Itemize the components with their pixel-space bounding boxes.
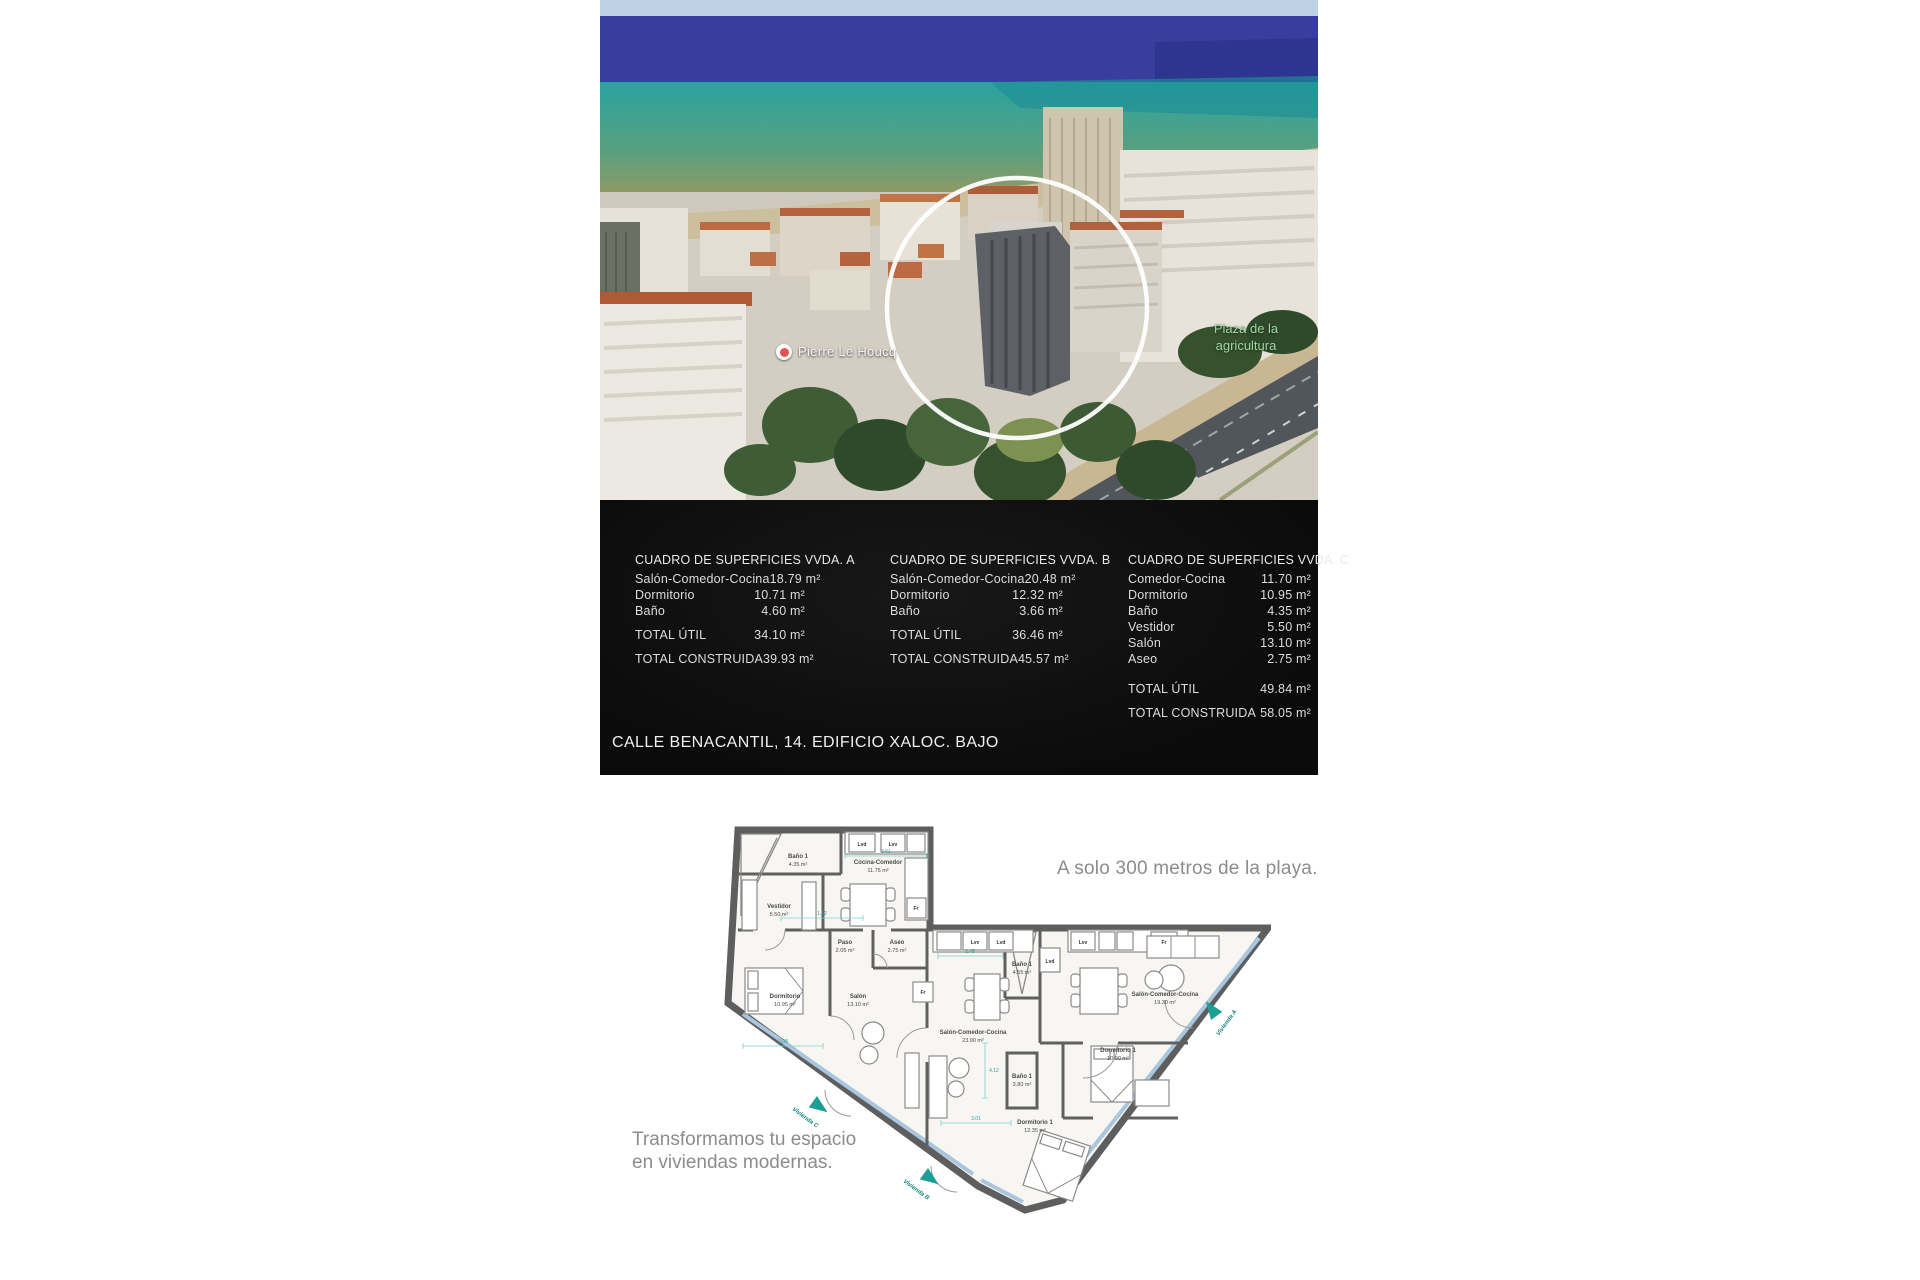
- table-row: Baño4.60 m²: [635, 603, 805, 619]
- appliance-label-fr: Fr: [914, 906, 919, 912]
- appliance-label-lvd: Lvd: [1046, 959, 1055, 965]
- entrance-label: Vivienda C: [791, 1107, 820, 1130]
- park-label-line1: Plaza de la: [1198, 320, 1294, 337]
- appliance-label-lvv: Lvv: [971, 940, 980, 946]
- dimension-label: 2.45: [965, 949, 975, 955]
- surface-table-b: CUADRO DE SUPERFICIES VVDA. B Salón-Come…: [890, 552, 1063, 667]
- appliance-label-lvv: Lvv: [1079, 940, 1088, 946]
- row-label: TOTAL CONSTRUIDA: [1128, 705, 1256, 721]
- row-value: 58.05 m²: [1260, 705, 1311, 721]
- row-value: 39.93 m²: [763, 651, 814, 667]
- table-row: Salón-Comedor-Cocina20.48 m²: [890, 571, 1063, 587]
- row-value: 2.75 m²: [1267, 651, 1311, 667]
- table-row: Salón-Comedor-Cocina18.79 m²: [635, 571, 805, 587]
- row-value: 49.84 m²: [1260, 681, 1311, 697]
- wardrobe: [802, 882, 816, 930]
- entrance-label: Vivienda B: [902, 1179, 931, 1202]
- room-area: 10.95 m²: [774, 1002, 796, 1008]
- floor-plan: 3.61 1.52 2.45 2.08 3.01 4.12 Lvd Lvv Fr…: [723, 818, 1271, 1218]
- row-label: Comedor-Cocina: [1128, 571, 1225, 587]
- room-area: 10.90 m²: [1107, 1056, 1129, 1062]
- room-area: 12.35 m²: [1024, 1128, 1046, 1134]
- row-label: Salón-Comedor-Cocina: [635, 571, 770, 587]
- place-label: Pierre Le Houcq: [798, 344, 896, 359]
- table-row: Comedor-Cocina11.70 m²: [1128, 571, 1311, 587]
- dimension-label: 4.12: [989, 1068, 999, 1074]
- room-area: 4.35 m²: [789, 862, 808, 868]
- table-row: Aseo2.75 m²: [1128, 651, 1311, 667]
- total-util-row: TOTAL ÚTIL49.84 m²: [1128, 681, 1311, 697]
- table-row: Vestidor5.50 m²: [1128, 619, 1311, 635]
- row-value: 5.50 m²: [1267, 619, 1311, 635]
- wardrobe: [742, 880, 757, 930]
- park-label-line2: agricultura: [1198, 337, 1294, 354]
- table-row: Dormitorio12.32 m²: [890, 587, 1063, 603]
- room-label: Dormitorio 1: [1100, 1048, 1136, 1054]
- room-label: Baño 1: [1012, 1074, 1033, 1080]
- row-label: TOTAL CONSTRUIDA: [890, 651, 1018, 667]
- room-label: Dormitorio: [770, 994, 801, 1000]
- room-area: 13.10 m²: [847, 1002, 869, 1008]
- row-label: Salón-Comedor-Cocina: [890, 571, 1025, 587]
- entrance-arrow-b: Vivienda B: [902, 1161, 944, 1202]
- total-built-row: TOTAL CONSTRUIDA45.57 m²: [890, 651, 1063, 667]
- room-label: Vestidor: [767, 904, 791, 910]
- room-label: Salón-Comedor-Cocina: [940, 1030, 1007, 1036]
- map-pin-icon: [776, 344, 792, 360]
- appliance-label-lvv: Lvv: [889, 842, 898, 848]
- row-value: 18.79 m²: [770, 571, 821, 587]
- room-area: 2.75 m²: [888, 948, 907, 954]
- row-value: 36.46 m²: [1012, 627, 1063, 643]
- appliance-label-lvd: Lvd: [858, 842, 867, 848]
- total-built-row: TOTAL CONSTRUIDA39.93 m²: [635, 651, 805, 667]
- total-util-row: TOTAL ÚTIL36.46 m²: [890, 627, 1063, 643]
- row-value: 10.95 m²: [1260, 587, 1311, 603]
- row-value: 4.35 m²: [1267, 603, 1311, 619]
- row-value: 11.70 m²: [1261, 571, 1311, 587]
- row-label: Salón: [1128, 635, 1161, 651]
- flyer-page: Pierre Le Houcq Plaza de la agricultura …: [0, 0, 1920, 1280]
- room-area: 5.50 m²: [770, 912, 789, 918]
- row-label: Vestidor: [1128, 619, 1175, 635]
- room-area: 11.75 m²: [867, 868, 888, 874]
- entrance-arrow-c: Vivienda C: [791, 1089, 833, 1130]
- table-title: CUADRO DE SUPERFICIES VVDA. B: [890, 552, 1063, 568]
- aerial-photo: Pierre Le Houcq Plaza de la agricultura: [600, 0, 1318, 500]
- surface-table-a: CUADRO DE SUPERFICIES VVDA. A Salón-Come…: [635, 552, 805, 667]
- appliance-label-fr: Fr: [1162, 940, 1167, 946]
- table-title: CUADRO DE SUPERFICIES VVDA. C: [1128, 552, 1311, 568]
- appliance-label-lvd: Lvd: [997, 940, 1006, 946]
- table-row: Baño4.35 m²: [1128, 603, 1311, 619]
- table-title: CUADRO DE SUPERFICIES VVDA. A: [635, 552, 805, 568]
- row-value: 12.32 m²: [1012, 587, 1063, 603]
- room-label: Baño 1: [1012, 962, 1033, 968]
- table-row: Dormitorio10.95 m²: [1128, 587, 1311, 603]
- row-value: 34.10 m²: [754, 627, 805, 643]
- park-label: Plaza de la agricultura: [1198, 320, 1294, 354]
- row-label: TOTAL ÚTIL: [635, 627, 706, 643]
- room-label: Cocina-Comedor: [854, 860, 903, 866]
- room-label: Paso: [838, 940, 853, 946]
- surfaces-panel: CUADRO DE SUPERFICIES VVDA. A Salón-Come…: [600, 500, 1318, 775]
- row-value: 20.48 m²: [1025, 571, 1076, 587]
- row-label: TOTAL ÚTIL: [890, 627, 961, 643]
- total-util-row: TOTAL ÚTIL34.10 m²: [635, 627, 805, 643]
- aerial-photo-art: [600, 0, 1318, 500]
- dimension-label: 2.08: [778, 1039, 788, 1045]
- appliance-label-fr: Fr: [921, 990, 926, 996]
- row-value: 10.71 m²: [754, 587, 805, 603]
- room-area: 3.80 m²: [1013, 1082, 1032, 1088]
- table-row: Salón13.10 m²: [1128, 635, 1311, 651]
- row-label: TOTAL CONSTRUIDA: [635, 651, 763, 667]
- row-label: Dormitorio: [1128, 587, 1188, 603]
- room-label: Salón-Comedor-Cocina: [1132, 992, 1199, 998]
- row-label: Baño: [635, 603, 665, 619]
- row-label: Baño: [1128, 603, 1158, 619]
- row-value: 13.10 m²: [1260, 635, 1311, 651]
- row-label: Aseo: [1128, 651, 1157, 667]
- dimension-label: 3.61: [881, 849, 891, 855]
- room-area: 4.55 m²: [1013, 970, 1032, 976]
- dimension-label: 1.52: [817, 911, 827, 917]
- room-label: Aseo: [890, 940, 905, 946]
- room-area: 19.30 m²: [1154, 1000, 1176, 1006]
- surface-table-c: CUADRO DE SUPERFICIES VVDA. C Comedor-Co…: [1128, 552, 1311, 721]
- room-label: Salón: [850, 994, 867, 1000]
- row-label: TOTAL ÚTIL: [1128, 681, 1199, 697]
- wardrobe: [1135, 1080, 1169, 1106]
- row-value: 45.57 m²: [1018, 651, 1069, 667]
- row-label: Dormitorio: [635, 587, 695, 603]
- highlighted-building: [975, 226, 1070, 396]
- row-label: Dormitorio: [890, 587, 950, 603]
- table-row: Dormitorio10.71 m²: [635, 587, 805, 603]
- sky: [600, 0, 1318, 18]
- row-value: 3.66 m²: [1019, 603, 1063, 619]
- room-label: Dormitorio 1: [1017, 1120, 1053, 1126]
- row-value: 4.60 m²: [761, 603, 805, 619]
- room-area: 23.90 m²: [962, 1038, 984, 1044]
- dimension-label: 3.01: [971, 1116, 981, 1122]
- room-area: 2.05 m²: [836, 948, 855, 954]
- room-label: Baño 1: [788, 854, 809, 860]
- total-built-row: TOTAL CONSTRUIDA58.05 m²: [1128, 705, 1311, 721]
- table-row: Baño3.66 m²: [890, 603, 1063, 619]
- address-line: CALLE BENACANTIL, 14. EDIFICIO XALOC. BA…: [612, 734, 999, 752]
- row-label: Baño: [890, 603, 920, 619]
